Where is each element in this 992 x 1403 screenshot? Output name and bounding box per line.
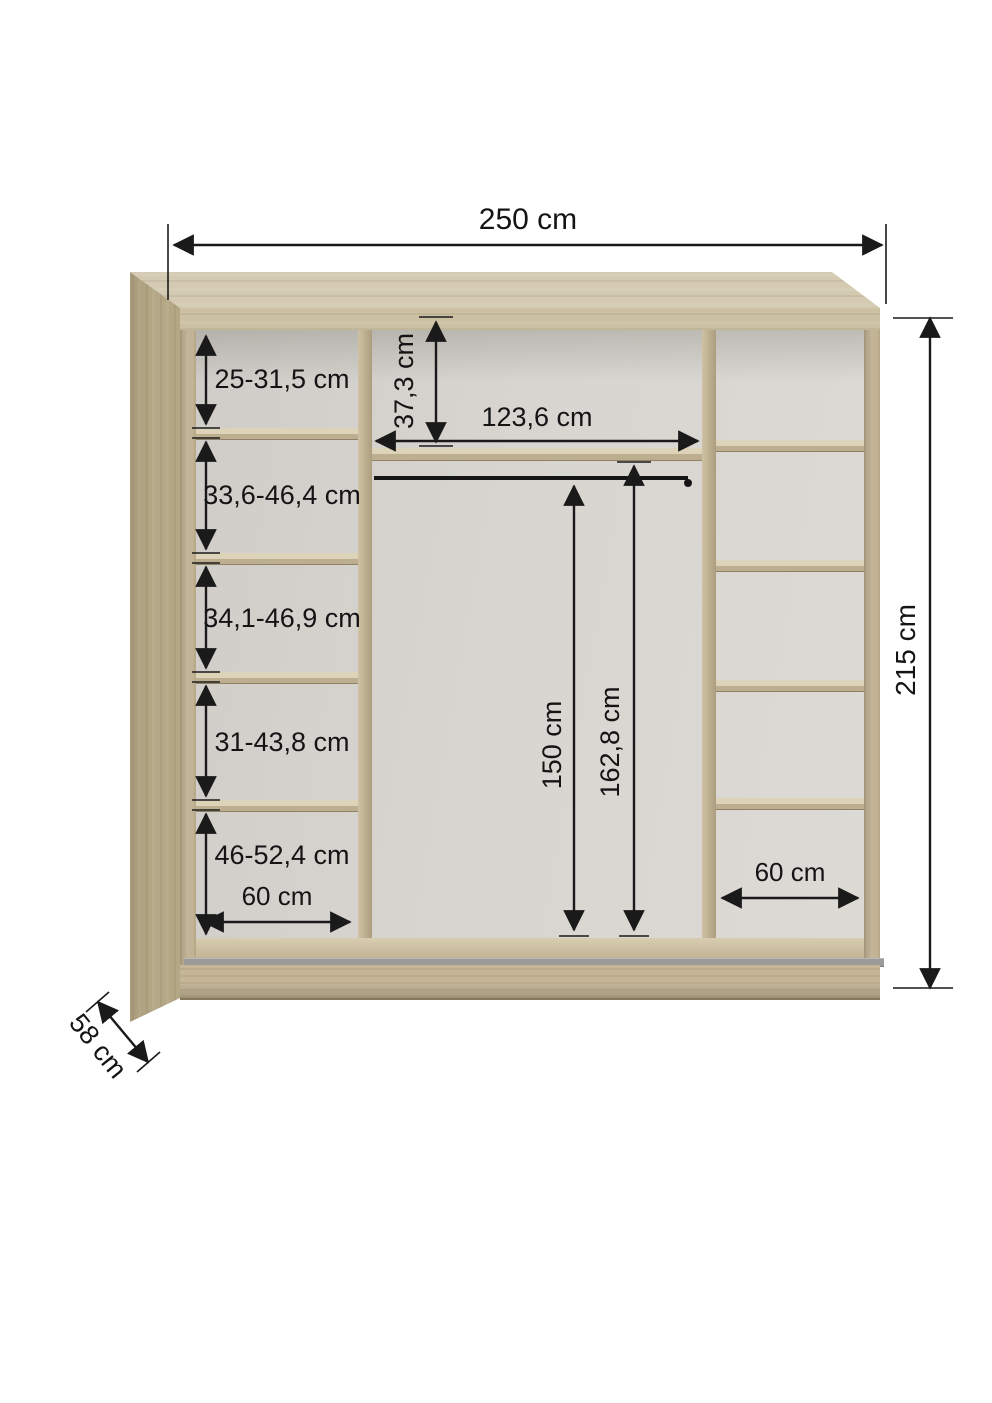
label-overall-height: 215 cm	[891, 570, 921, 730]
label-right-column-width: 60 cm	[710, 857, 870, 887]
label-left-compartment-1: 25-31,5 cm	[177, 364, 387, 394]
label-left-column-width: 60 cm	[197, 881, 357, 911]
label-left-compartment-3: 34,1-46,9 cm	[177, 603, 387, 633]
wardrobe-dimension-diagram: 250 cm 215 cm 58 cm 25-31,5 cm 33,6-46,4…	[0, 0, 992, 1403]
dim-overall-width	[168, 224, 886, 304]
label-top-shelf-offset: 37,3 cm	[389, 301, 419, 461]
label-left-compartment-4: 31-43,8 cm	[177, 727, 387, 757]
label-hanging-height: 162,8 cm	[595, 662, 625, 822]
hanging-rod	[374, 478, 692, 487]
label-middle-width: 123,6 cm	[437, 402, 637, 432]
label-left-compartment-5: 46-52,4 cm	[177, 840, 387, 870]
label-overall-width: 250 cm	[428, 205, 628, 235]
label-left-compartment-2: 33,6-46,4 cm	[177, 480, 387, 510]
label-rod-height: 150 cm	[537, 665, 567, 825]
